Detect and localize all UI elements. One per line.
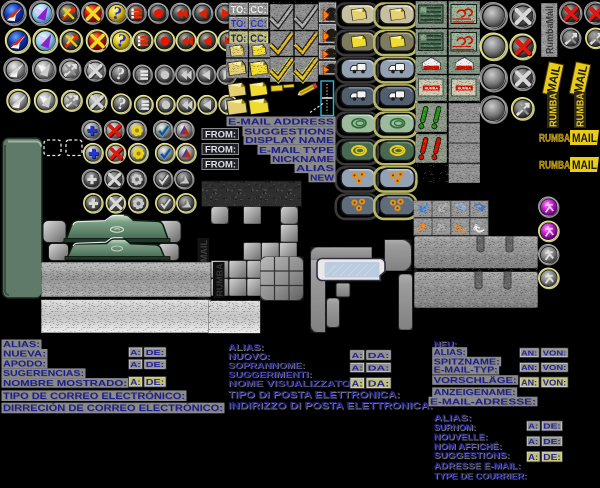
svg-text:RUMBA: RUMBA <box>539 133 570 145</box>
svg-text:DA:: DA: <box>368 363 390 372</box>
svg-text:SURNOM:: SURNOM: <box>434 422 476 432</box>
svg-text:RUMBA: RUMBA <box>215 263 224 296</box>
svg-text:NOMBRE MOSTRADO:: NOMBRE MOSTRADO: <box>3 378 127 388</box>
svg-text:E-MAIL ADDRESS: E-MAIL ADDRESS <box>228 116 334 126</box>
svg-text:A:: A: <box>130 360 141 369</box>
svg-text:FROM:: FROM: <box>205 130 236 140</box>
svg-text:A:: A: <box>352 351 363 360</box>
svg-text:TIPO DE CORREO ELECTRÓNICO:: TIPO DE CORREO ELECTRÓNICO: <box>3 390 185 401</box>
svg-text:A:: A: <box>528 437 538 446</box>
svg-text:RUMBA: RUMBA <box>549 93 560 127</box>
svg-text:DE:: DE: <box>146 378 165 387</box>
svg-text:DA:: DA: <box>368 378 390 388</box>
svg-text:RUMBA: RUMBA <box>576 93 587 127</box>
svg-text:E-MAIL-TYP:: E-MAIL-TYP: <box>434 365 498 375</box>
svg-text:DE:: DE: <box>146 348 165 357</box>
svg-text:AN:: AN: <box>521 378 537 387</box>
svg-text:DISPLAY NAME: DISPLAY NAME <box>245 135 334 145</box>
svg-text:RUMBA: RUMBA <box>539 160 570 172</box>
svg-text:DE:: DE: <box>543 422 561 431</box>
svg-text:A:: A: <box>528 422 538 431</box>
svg-text:E-MAIL-ADRESSE:: E-MAIL-ADRESSE: <box>430 396 536 406</box>
svg-text:MAIL: MAIL <box>572 133 597 145</box>
svg-text:VON:: VON: <box>543 364 567 372</box>
svg-text:A:: A: <box>528 453 538 462</box>
svg-text:AN:: AN: <box>521 364 537 372</box>
svg-text:TYPE DE COURRIER:: TYPE DE COURRIER: <box>434 471 527 481</box>
svg-text:FROM:: FROM: <box>205 160 236 170</box>
svg-text:A:: A: <box>352 363 363 372</box>
svg-text:NUEVA:: NUEVA: <box>3 349 46 359</box>
svg-text:VON:: VON: <box>543 349 567 357</box>
svg-text:INDIRIZZO DI POSTA ELETTRONICA: INDIRIZZO DI POSTA ELETTRONICA: <box>228 400 433 411</box>
svg-text:DA:: DA: <box>368 351 390 360</box>
svg-text:DIRRECIÓN DE CORREO ELECTRÓNIC: DIRRECIÓN DE CORREO ELECTRÓNICO: <box>3 402 223 413</box>
svg-text:TIPO DI POSTA ELETTRONICA:: TIPO DI POSTA ELETTRONICA: <box>228 389 400 400</box>
svg-text:MAIL: MAIL <box>572 160 597 172</box>
svg-text:A:: A: <box>352 378 363 388</box>
svg-text:SUGERENCIAS:: SUGERENCIAS: <box>3 368 84 378</box>
svg-text:VORSCHLÄGE:: VORSCHLÄGE: <box>434 375 517 385</box>
svg-text:A:: A: <box>130 348 141 357</box>
svg-text:DE:: DE: <box>146 360 165 369</box>
svg-text:NOME VISUALIZZATO:: NOME VISUALIZZATO: <box>228 378 354 388</box>
svg-text:VON:: VON: <box>543 378 567 387</box>
svg-text:FROM:: FROM: <box>205 145 236 155</box>
svg-text:APODO:: APODO: <box>3 358 46 368</box>
svg-text:ALIAS:: ALIAS: <box>3 339 40 349</box>
svg-text:DE:: DE: <box>543 437 561 446</box>
svg-text:NEW: NEW <box>310 172 335 182</box>
svg-text:AN:: AN: <box>521 349 537 357</box>
svg-text:A:: A: <box>130 378 141 387</box>
svg-text:ADRESSE E-MAIL:: ADRESSE E-MAIL: <box>434 461 521 471</box>
svg-text:ALIAS:: ALIAS: <box>434 347 466 357</box>
svg-text:DE:: DE: <box>543 453 561 462</box>
svg-text:SUGGESTIONS:: SUGGESTIONS: <box>434 450 510 460</box>
